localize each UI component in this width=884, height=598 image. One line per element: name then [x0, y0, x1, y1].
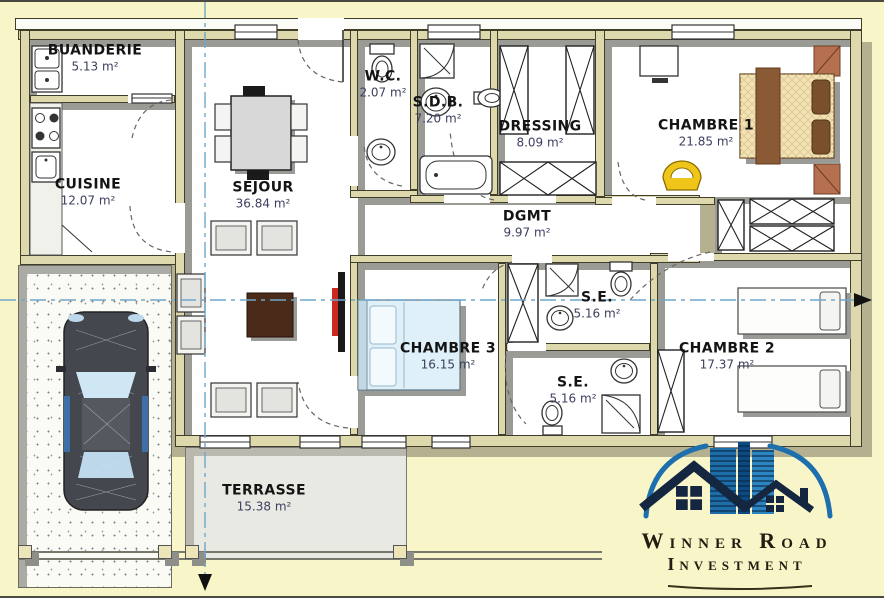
room-area: 5.16 m² [549, 391, 596, 405]
room-name: S.D.B. [413, 94, 464, 111]
room-label-chambre3: CHAMBRE 3 16.15 m² [400, 340, 496, 371]
room-name: W.C. [359, 68, 406, 85]
tv-icon [332, 272, 345, 352]
room-label-dressing: DRESSING 8.09 m² [498, 118, 581, 149]
room-name: S.E. [573, 289, 620, 306]
sink-icon [367, 139, 395, 165]
room-name: DGMT [503, 208, 551, 225]
logo-company-subtitle: Investment [612, 554, 862, 575]
room-label-se-haut: S.E. 5.16 m² [573, 289, 620, 320]
room-name: TERRASSE [222, 482, 306, 499]
shower-icon [602, 395, 640, 433]
room-area: 5.13 m² [48, 59, 143, 73]
room-area: 7.20 m² [413, 111, 464, 125]
floor-plan: BUANDERIE 5.13 m² CUISINE 12.07 m² SEJOU… [0, 0, 884, 598]
room-name: CHAMBRE 2 [679, 340, 775, 357]
room-name: CUISINE [55, 176, 121, 193]
room-label-chambre2: CHAMBRE 2 17.37 m² [679, 340, 775, 371]
room-area: 21.85 m² [658, 134, 754, 148]
toilet-icon [542, 401, 562, 435]
room-name: DRESSING [498, 118, 581, 135]
car [56, 312, 156, 510]
room-label-terrasse: TERRASSE 15.38 m² [222, 482, 306, 513]
room-area: 16.15 m² [400, 357, 496, 371]
round-chair-icon [663, 161, 701, 190]
room-name: BUANDERIE [48, 42, 143, 59]
room-area: 8.09 m² [498, 135, 581, 149]
sink-icon [611, 359, 637, 383]
dining-table-icon [215, 86, 307, 180]
stove-icon [32, 108, 60, 148]
room-area: 17.37 m² [679, 357, 775, 371]
tv-icon [640, 46, 678, 83]
logo-company-name: Winner Road [612, 528, 862, 554]
bathtub-icon [420, 156, 492, 194]
room-area: 5.16 m² [573, 306, 620, 320]
room-area: 36.84 m² [232, 196, 293, 210]
room-area: 15.38 m² [222, 499, 306, 513]
room-label-dgmt: DGMT 9.97 m² [503, 208, 551, 239]
room-name: SEJOUR [232, 179, 293, 196]
room-label-buanderie: BUANDERIE 5.13 m² [48, 42, 143, 73]
room-name: CHAMBRE 1 [658, 117, 754, 134]
room-label-se-bas: S.E. 5.16 m² [549, 374, 596, 405]
room-label-chambre1: CHAMBRE 1 21.85 m² [658, 117, 754, 148]
room-label-cuisine: CUISINE 12.07 m² [55, 176, 121, 207]
room-label-sejour: SEJOUR 36.84 m² [232, 179, 293, 210]
room-area: 9.97 m² [503, 225, 551, 239]
room-name: CHAMBRE 3 [400, 340, 496, 357]
shower-icon [420, 44, 454, 78]
top-border [0, 0, 884, 2]
double-bed-icon [740, 68, 840, 164]
room-label-wc: W.C. 2.07 m² [359, 68, 406, 99]
sink-icon [547, 306, 573, 330]
room-label-sdb: S.D.B. 7.20 m² [413, 94, 464, 125]
room-area: 2.07 m² [359, 85, 406, 99]
room-name: S.E. [549, 374, 596, 391]
room-area: 12.07 m² [55, 193, 121, 207]
